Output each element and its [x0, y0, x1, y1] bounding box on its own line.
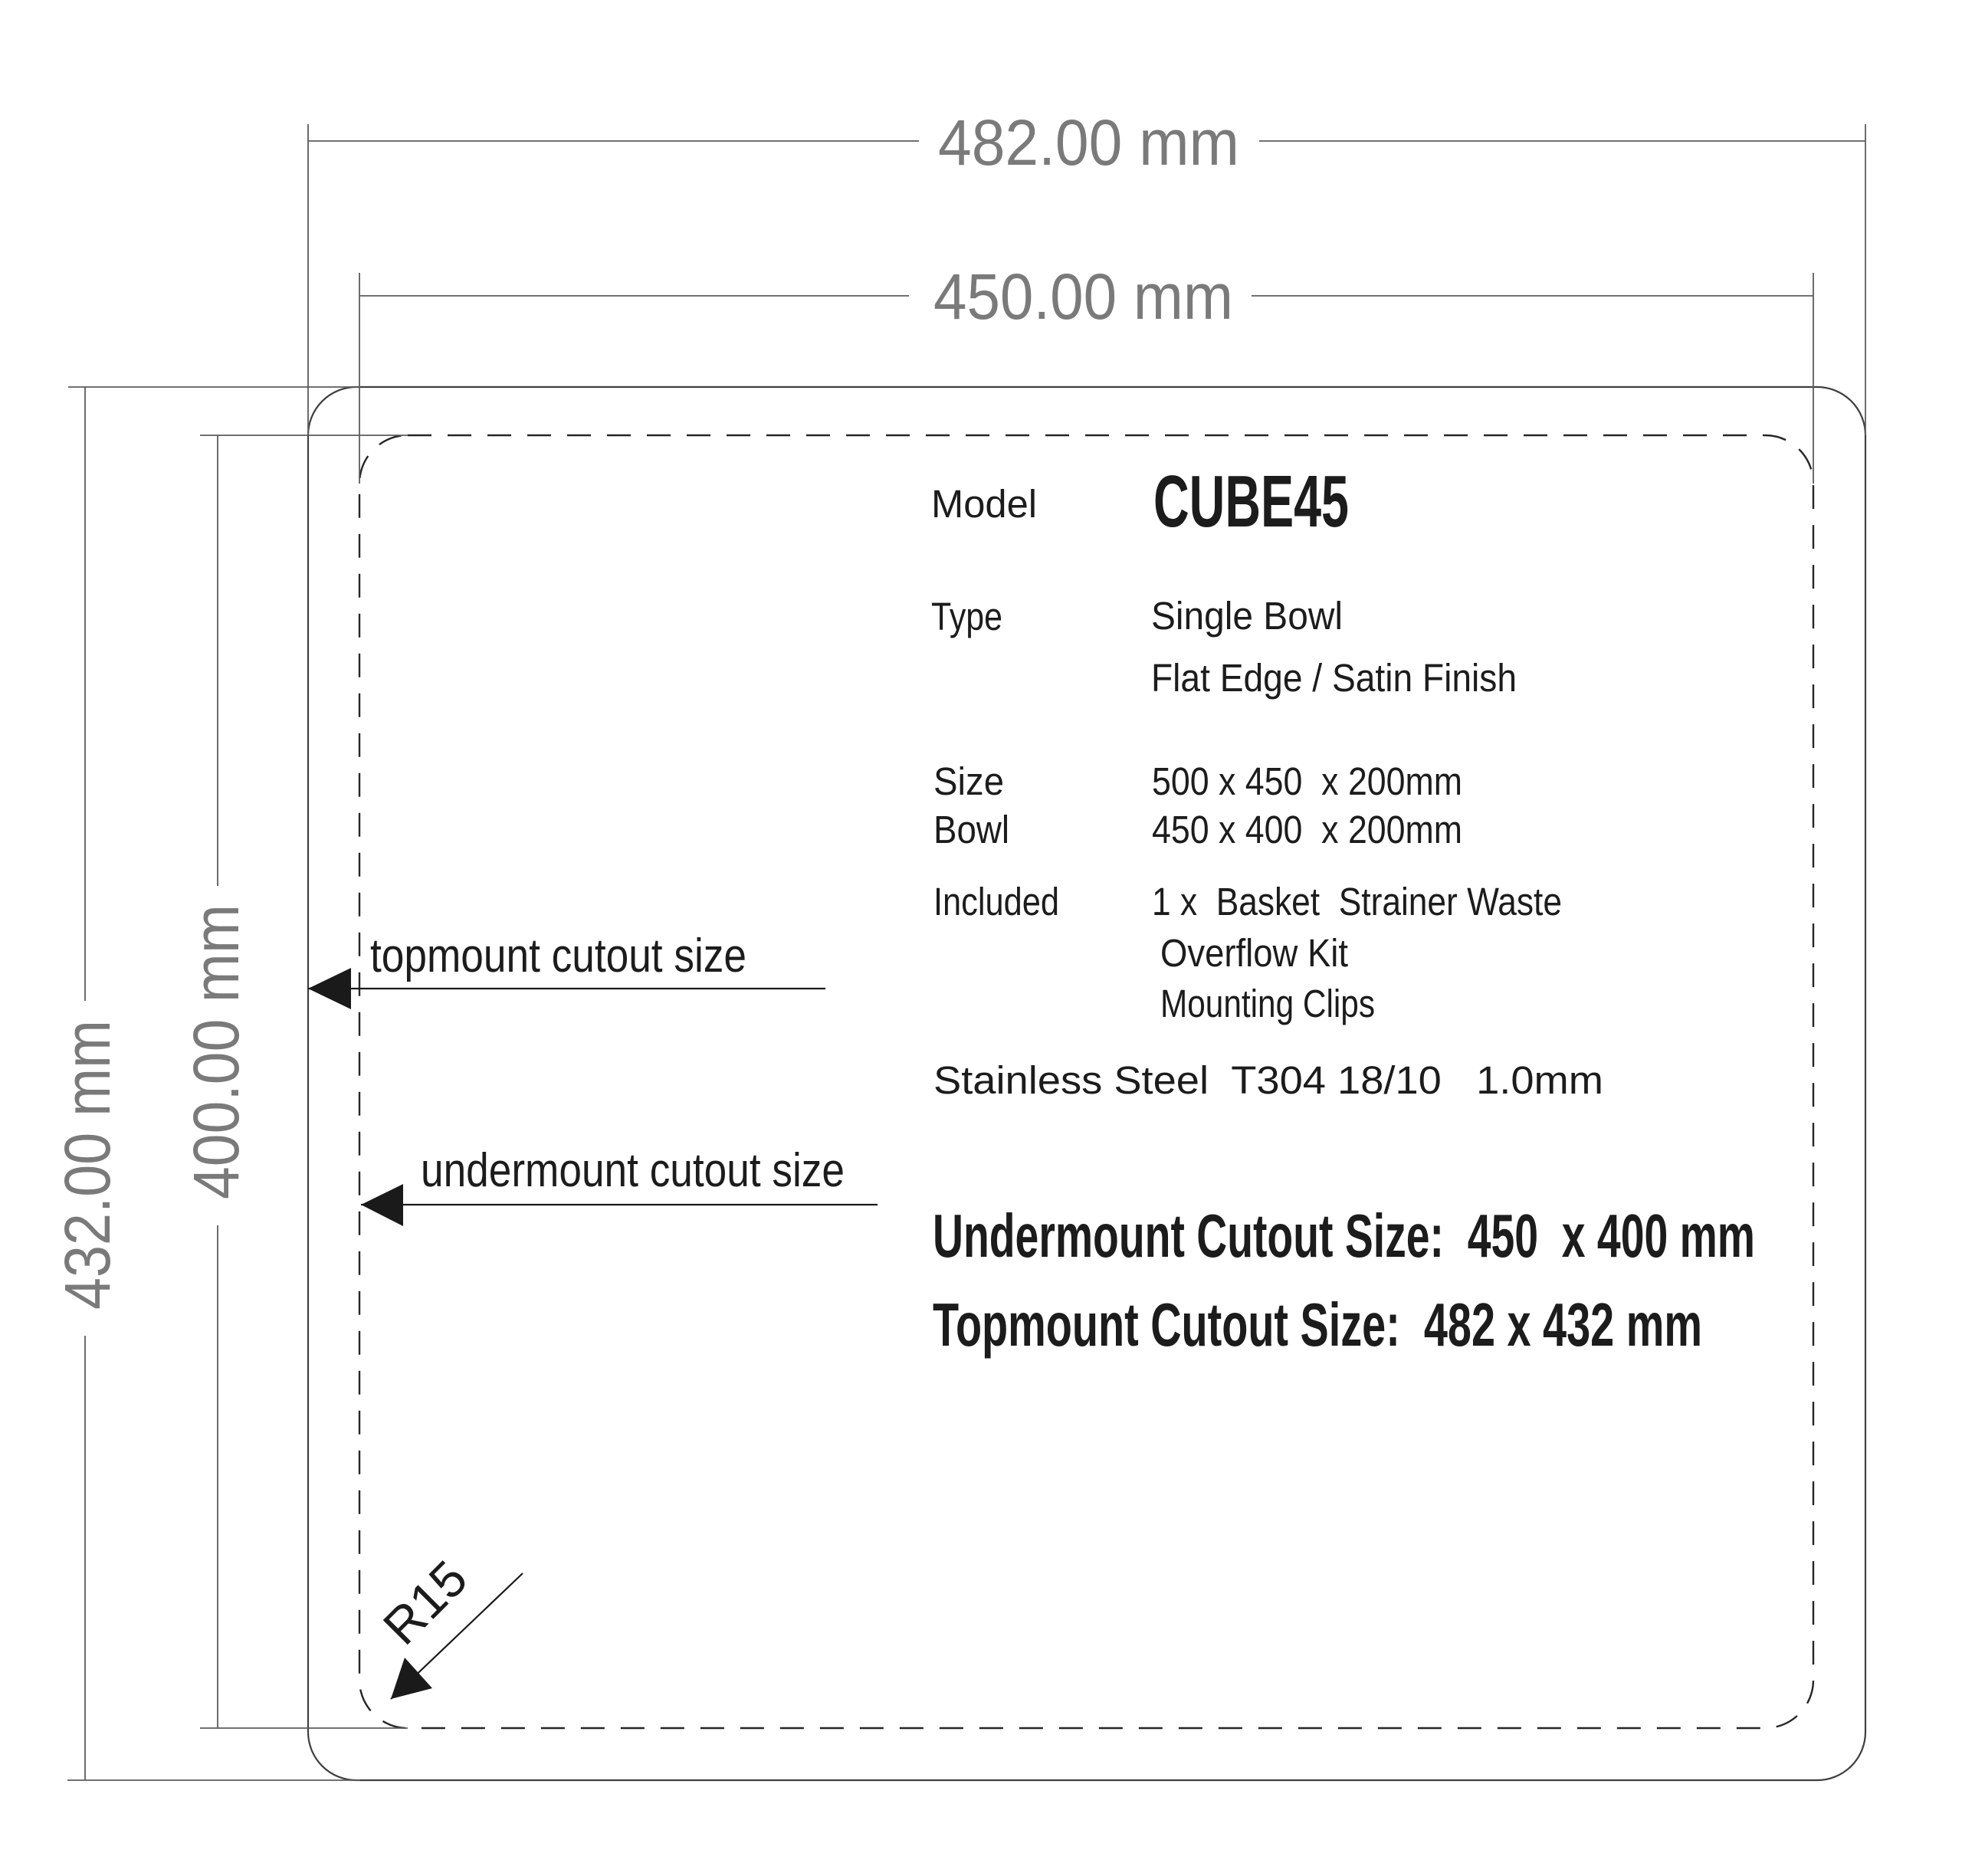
- svg-text:topmount cutout size: topmount cutout size: [370, 930, 746, 982]
- svg-text:400.00 mm: 400.00 mm: [180, 904, 252, 1199]
- svg-text:450.00 mm: 450.00 mm: [933, 261, 1233, 333]
- svg-text:Included: Included: [933, 880, 1059, 923]
- svg-text:1 x Basket Strainer Waste: 1 x Basket Strainer Waste: [1152, 880, 1562, 923]
- svg-text:Type: Type: [931, 595, 1002, 638]
- svg-text:undermount cutout size: undermount cutout size: [421, 1144, 845, 1197]
- svg-text:482.00 mm: 482.00 mm: [938, 107, 1239, 179]
- svg-text:Undermount Cutout Size: 450: Undermount Cutout Size: 450 x 400 mm: [933, 1202, 1755, 1270]
- svg-text:Overflow Kit: Overflow Kit: [1160, 931, 1348, 975]
- svg-text:Mounting Clips: Mounting Clips: [1160, 982, 1375, 1025]
- svg-text:Topmount Cutout Size: 482 x 4: Topmount Cutout Size: 482 x 432 mm: [933, 1291, 1702, 1359]
- svg-text:500 x 450 x 200mm: 500 x 450 x 200mm: [1152, 759, 1462, 803]
- svg-text:450 x 400 x 200mm: 450 x 400 x 200mm: [1152, 808, 1462, 851]
- svg-text:Single Bowl: Single Bowl: [1151, 594, 1343, 638]
- svg-text:Bowl: Bowl: [933, 808, 1009, 851]
- svg-text:Size: Size: [933, 759, 1004, 803]
- svg-text:Stainless Steel T304 18/10: Stainless Steel T304 18/10 1.0mm: [933, 1058, 1603, 1102]
- svg-text:CUBE45: CUBE45: [1153, 461, 1349, 543]
- svg-text:432.00 mm: 432.00 mm: [51, 1020, 123, 1310]
- svg-text:Model: Model: [931, 482, 1037, 526]
- svg-text:Flat Edge / Satin Finish: Flat Edge / Satin Finish: [1151, 656, 1517, 700]
